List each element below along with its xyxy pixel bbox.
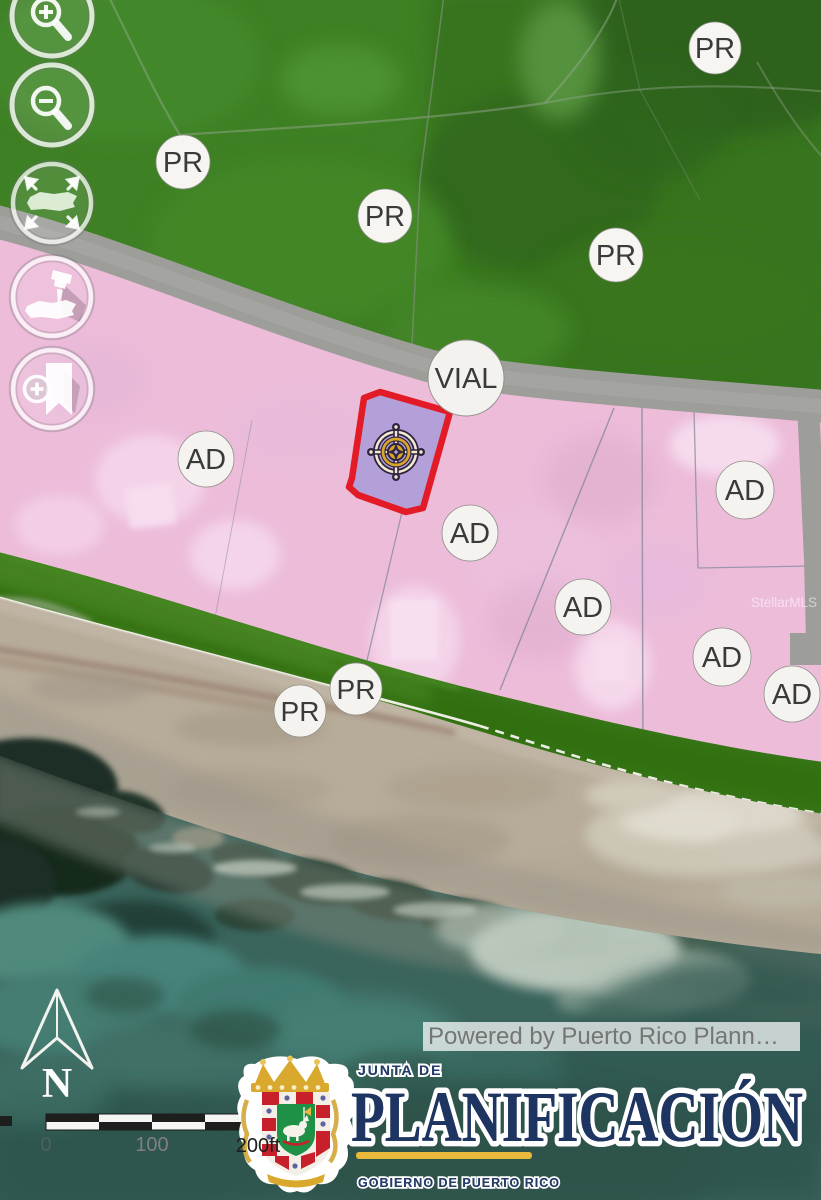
svg-text:PR: PR — [695, 33, 735, 65]
svg-text:0: 0 — [40, 1134, 51, 1156]
svg-text:GOBIERNO DE PUERTO RICO: GOBIERNO DE PUERTO RICO — [358, 1176, 560, 1190]
svg-text:AD: AD — [450, 518, 490, 550]
svg-text:100: 100 — [135, 1134, 168, 1156]
svg-text:Powered by Puerto Rico Plann…: Powered by Puerto Rico Plann… — [428, 1023, 779, 1050]
svg-text:N: N — [42, 1061, 72, 1107]
svg-text:AD: AD — [725, 475, 765, 507]
svg-text:VIAL: VIAL — [435, 363, 498, 395]
svg-text:AD: AD — [186, 444, 226, 476]
svg-text:PR: PR — [337, 674, 376, 705]
svg-text:AD: AD — [702, 642, 742, 674]
svg-text:AD: AD — [772, 679, 812, 711]
svg-text:PR: PR — [365, 201, 405, 233]
svg-text:StellarMLS: StellarMLS — [751, 595, 817, 610]
svg-text:AD: AD — [563, 592, 603, 624]
svg-text:PR: PR — [163, 147, 203, 179]
svg-text:PLANIFICACIÓN: PLANIFICACIÓN — [351, 1077, 803, 1157]
svg-text:PR: PR — [281, 696, 320, 727]
svg-text:200ft: 200ft — [236, 1135, 281, 1157]
svg-text:JUNTA DE: JUNTA DE — [358, 1062, 442, 1078]
svg-text:PR: PR — [596, 240, 636, 272]
